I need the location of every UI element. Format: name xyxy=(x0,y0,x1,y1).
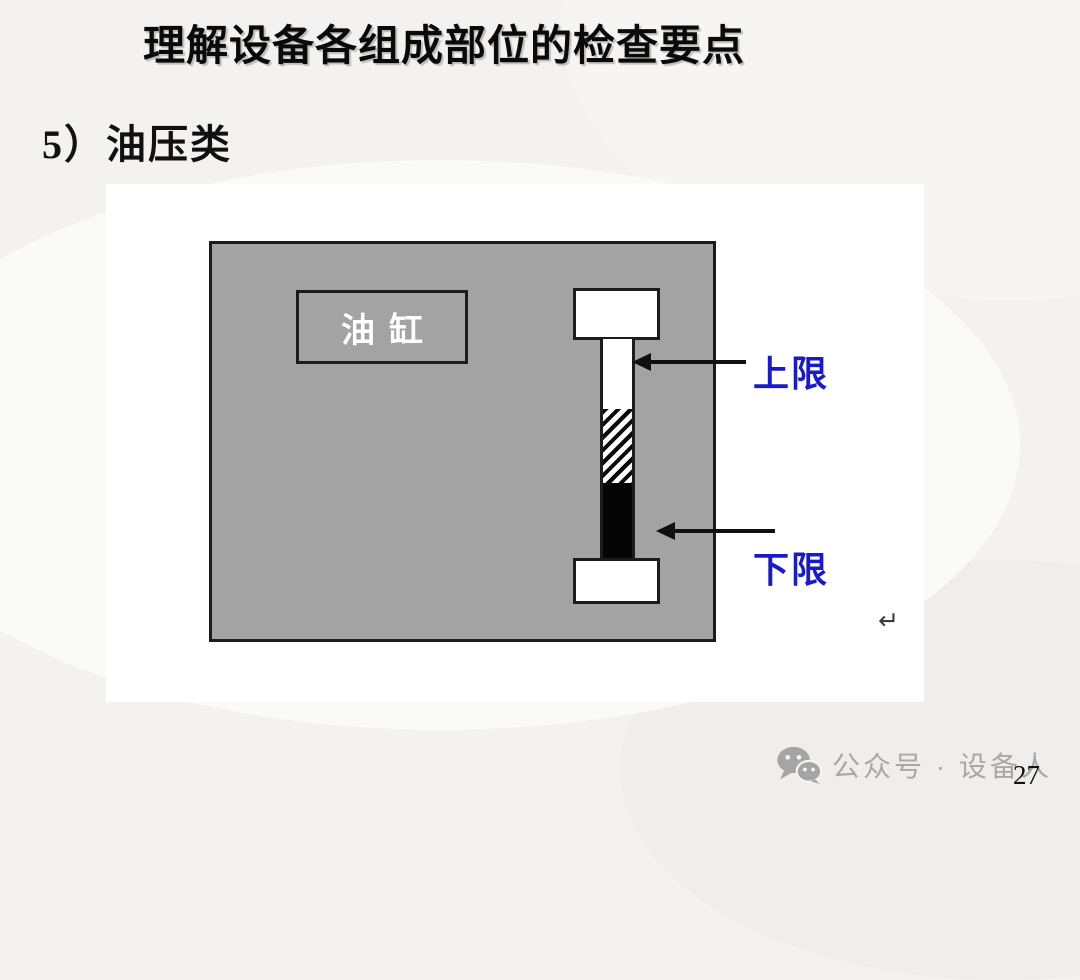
upper-limit-arrow xyxy=(632,353,746,371)
sight-glass-hatched-segment xyxy=(603,409,632,483)
lower-limit-arrow xyxy=(656,522,775,540)
upper-limit-label: 上限 xyxy=(753,345,829,397)
paragraph-return-icon: ↵ xyxy=(878,606,899,635)
sight-glass-tube xyxy=(600,339,635,559)
lower-limit-arrow-shaft xyxy=(671,529,775,533)
sight-glass-bottom-fitting xyxy=(573,558,660,604)
lower-limit-label: 下限 xyxy=(753,541,829,593)
diagram-panel: 油缸 上限 下限 ↵ xyxy=(106,184,924,702)
upper-limit-arrow-shaft xyxy=(647,360,746,364)
section-heading: 5）油压类 xyxy=(42,112,232,170)
page-number: 27 xyxy=(1013,760,1040,791)
sight-glass-empty-segment xyxy=(603,339,632,409)
footer: 公众号 · 设备人 xyxy=(776,745,1052,785)
sight-glass-oil-segment xyxy=(603,483,632,559)
slide-title: 理解设备各组成部位的检查要点 xyxy=(143,12,745,73)
sight-glass-top-fitting xyxy=(573,288,660,340)
wechat-icon xyxy=(776,746,822,784)
oil-tank-label: 油缸 xyxy=(296,290,468,364)
